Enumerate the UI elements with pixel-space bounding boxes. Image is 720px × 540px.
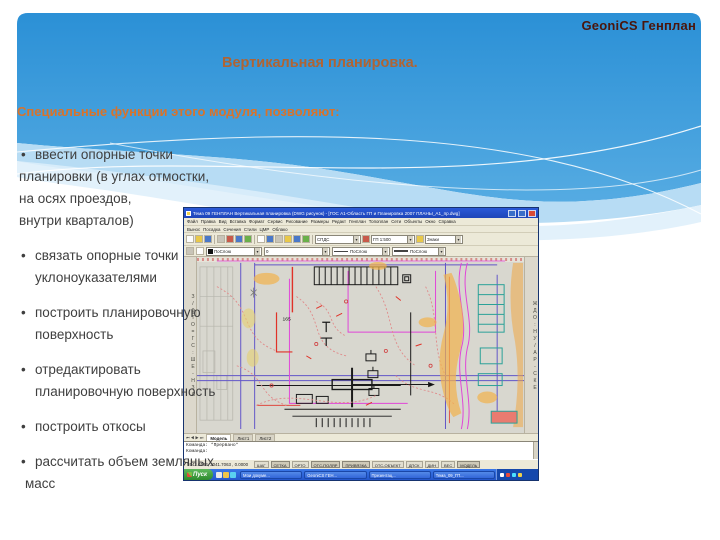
tray-icon[interactable] bbox=[512, 473, 516, 477]
bullet-line: отредактировать bbox=[35, 359, 257, 381]
bullet-dot: • bbox=[21, 144, 26, 166]
bullet-line: планировки (в углах отмостки, bbox=[19, 166, 257, 188]
toolbar-icon[interactable] bbox=[257, 235, 265, 243]
status-toggle[interactable]: ДПСК bbox=[406, 461, 423, 468]
chevron-down-icon[interactable]: ▾ bbox=[455, 236, 461, 243]
status-toggle[interactable]: МОДЕЛЬ bbox=[457, 461, 480, 468]
linetype-sample bbox=[334, 251, 348, 252]
menu-item[interactable]: Облако bbox=[272, 227, 287, 232]
chevron-down-icon[interactable]: ▾ bbox=[407, 236, 413, 243]
combo-value: Знаки bbox=[427, 237, 439, 242]
menu-item[interactable]: ЦМР bbox=[260, 227, 270, 232]
bullet-item: • рассчитать объем земляных масс bbox=[19, 451, 257, 495]
bullet-dot: • bbox=[21, 416, 26, 438]
minimize-button[interactable] bbox=[508, 210, 516, 217]
combo-value: ПоСлою bbox=[410, 249, 427, 254]
bullet-line: рассчитать объем земляных bbox=[35, 451, 257, 473]
menu-item[interactable]: Размеры bbox=[311, 219, 329, 224]
taskbar-button[interactable]: Тема_09_ГП... bbox=[433, 471, 495, 479]
command-scrollbar[interactable] bbox=[533, 442, 538, 459]
bullet-line: внутри кварталов) bbox=[19, 210, 257, 232]
tray-icon[interactable] bbox=[500, 473, 504, 477]
bullet-dot: • bbox=[21, 302, 26, 324]
status-toggle[interactable]: ОТС-ПОЛЯР bbox=[311, 461, 341, 468]
menu-item[interactable]: Редакт bbox=[332, 219, 346, 224]
toolbar-icon[interactable] bbox=[266, 235, 274, 243]
bullet-line: построить откосы bbox=[35, 416, 257, 438]
bullet-line: ввести опорные точки bbox=[35, 144, 257, 166]
chevron-down-icon[interactable]: ▾ bbox=[438, 248, 444, 255]
toolbar-icon[interactable] bbox=[416, 235, 424, 243]
presentation-slide: GeoniCS Генплан Вертикальная планировка.… bbox=[0, 0, 720, 540]
scale-combobox[interactable]: СПДС ▾ bbox=[315, 235, 361, 244]
slide-title: Вертикальная планировка. bbox=[222, 55, 418, 71]
bullet-line: на осях проездов, bbox=[19, 188, 257, 210]
bullet-item: • связать опорные точки уклоноуказателям… bbox=[19, 245, 257, 289]
maximize-button[interactable] bbox=[518, 210, 526, 217]
menu-item[interactable]: Окно bbox=[425, 219, 435, 224]
status-toggle[interactable]: СЕТКА bbox=[271, 461, 290, 468]
lineweight-combobox[interactable]: ПоСлою ▾ bbox=[392, 247, 446, 256]
status-toggle[interactable]: ПРИВЯЗКА bbox=[342, 461, 369, 468]
combo-value: ПоСлою bbox=[350, 249, 367, 254]
bullet-dot: • bbox=[21, 245, 26, 267]
toolbar-icon[interactable] bbox=[284, 235, 292, 243]
linetype-combobox[interactable]: ПоСлою ▾ bbox=[332, 247, 390, 256]
status-toggle[interactable]: ВЕС bbox=[441, 461, 455, 468]
bullet-dot: • bbox=[21, 451, 26, 473]
status-toggle[interactable]: ДИН bbox=[425, 461, 439, 468]
chevron-down-icon[interactable]: ▾ bbox=[382, 248, 388, 255]
status-toggle[interactable]: ОРТО bbox=[292, 461, 309, 468]
right-vertical-toolbar[interactable]: ЖДО:НУ/АР-СКЕ bbox=[524, 257, 538, 433]
tray-icon[interactable] bbox=[518, 473, 522, 477]
bullet-line: связать опорные точки bbox=[35, 245, 257, 267]
layer-combobox[interactable]: 0 ▾ bbox=[264, 247, 330, 256]
toolbar-icon[interactable] bbox=[275, 235, 283, 243]
menu-item[interactable]: Сети bbox=[391, 219, 401, 224]
bullet-line: планировочную поверхность bbox=[35, 381, 257, 403]
tray-icon[interactable] bbox=[506, 473, 510, 477]
bullet-item: • построить планировочную поверхность bbox=[19, 302, 257, 346]
taskbar-button[interactable]: Презентац... bbox=[369, 471, 431, 479]
close-button[interactable] bbox=[528, 210, 536, 217]
menu-item[interactable]: Сервис bbox=[268, 219, 283, 224]
style-combobox[interactable]: Знаки ▾ bbox=[425, 235, 463, 244]
toolbar-icon[interactable] bbox=[293, 235, 301, 243]
chevron-down-icon[interactable]: ▾ bbox=[322, 248, 328, 255]
bullet-line: поверхность bbox=[35, 324, 257, 346]
menu-item[interactable]: Генплан bbox=[349, 219, 366, 224]
chevron-down-icon[interactable]: ▾ bbox=[353, 236, 359, 243]
bullet-line: построить планировочную bbox=[35, 302, 257, 324]
bullet-line: уклоноуказателями bbox=[35, 267, 257, 289]
combo-value: СПДС bbox=[317, 237, 329, 242]
plan-scale-combobox[interactable]: ГП 1:500 ▾ bbox=[371, 235, 415, 244]
menu-item[interactable]: Объекты bbox=[404, 219, 422, 224]
brand-label: GeoniCS Генплан bbox=[582, 18, 697, 33]
menu-item[interactable]: Рисование bbox=[286, 219, 308, 224]
status-toggle[interactable]: ОТС-ОБЪЕКТ bbox=[372, 461, 404, 468]
combo-value: ГП 1:500 bbox=[373, 237, 391, 242]
combo-value: 0 bbox=[266, 249, 268, 254]
menu-item[interactable]: Топоплан bbox=[369, 219, 388, 224]
lineweight-sample bbox=[394, 250, 408, 252]
bullet-item: • построить откосы bbox=[19, 416, 257, 438]
bullet-line: масс bbox=[25, 473, 257, 495]
slide-subtitle: Специальные функции этого модуля, позвол… bbox=[17, 104, 340, 119]
toolbar-icon[interactable] bbox=[362, 235, 370, 243]
tab-layout2[interactable]: Лист2 bbox=[255, 434, 275, 441]
bullet-dot: • bbox=[21, 359, 26, 381]
system-tray bbox=[496, 469, 538, 480]
bullet-item: • ввести опорные точки планировки (в угл… bbox=[19, 144, 257, 232]
taskbar-button[interactable]: GeoniCS ГЕН... bbox=[304, 471, 366, 479]
bullet-item: • отредактировать планировочную поверхно… bbox=[19, 359, 257, 403]
elevation-label: 165 bbox=[282, 316, 291, 322]
toolbar-icon[interactable] bbox=[302, 235, 310, 243]
bullet-list: • ввести опорные точки планировки (в угл… bbox=[19, 144, 257, 508]
menu-item[interactable]: Справка bbox=[438, 219, 455, 224]
toolbar-separator bbox=[312, 235, 313, 244]
